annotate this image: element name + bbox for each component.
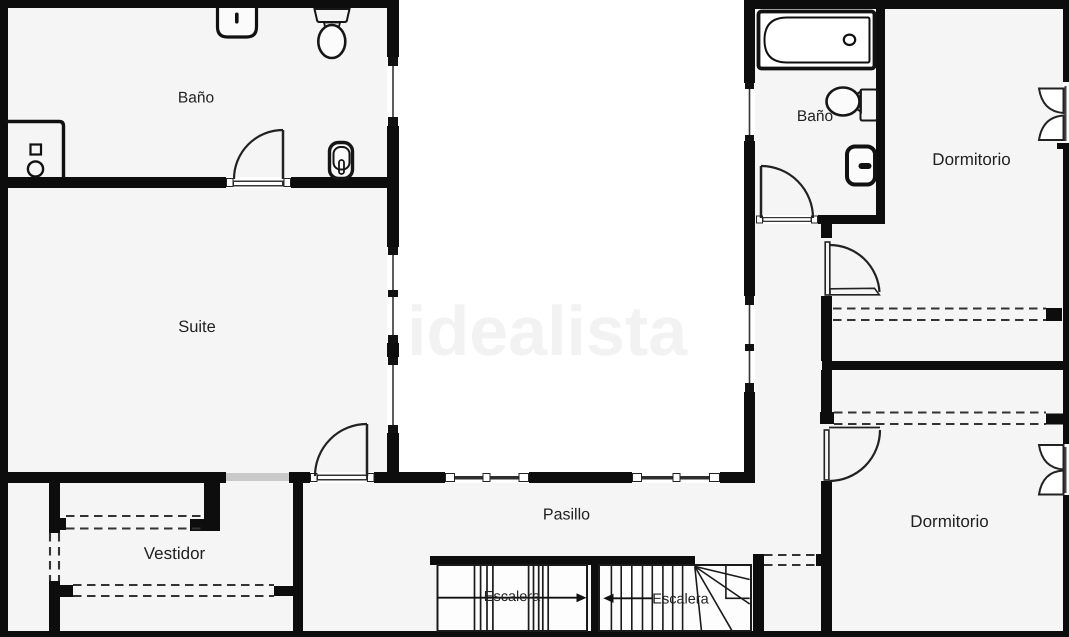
svg-text:Baño: Baño	[178, 90, 214, 107]
svg-text:idealista: idealista	[407, 292, 688, 370]
svg-text:Suite: Suite	[178, 318, 216, 336]
svg-text:Escalera: Escalera	[484, 589, 541, 605]
svg-text:Dormitorio: Dormitorio	[910, 512, 988, 531]
svg-text:Dormitorio: Dormitorio	[932, 150, 1010, 169]
svg-text:Baño: Baño	[797, 108, 833, 125]
svg-text:Pasillo: Pasillo	[543, 507, 590, 524]
svg-text:Vestidor: Vestidor	[144, 544, 206, 563]
svg-text:Escalera: Escalera	[652, 592, 709, 608]
